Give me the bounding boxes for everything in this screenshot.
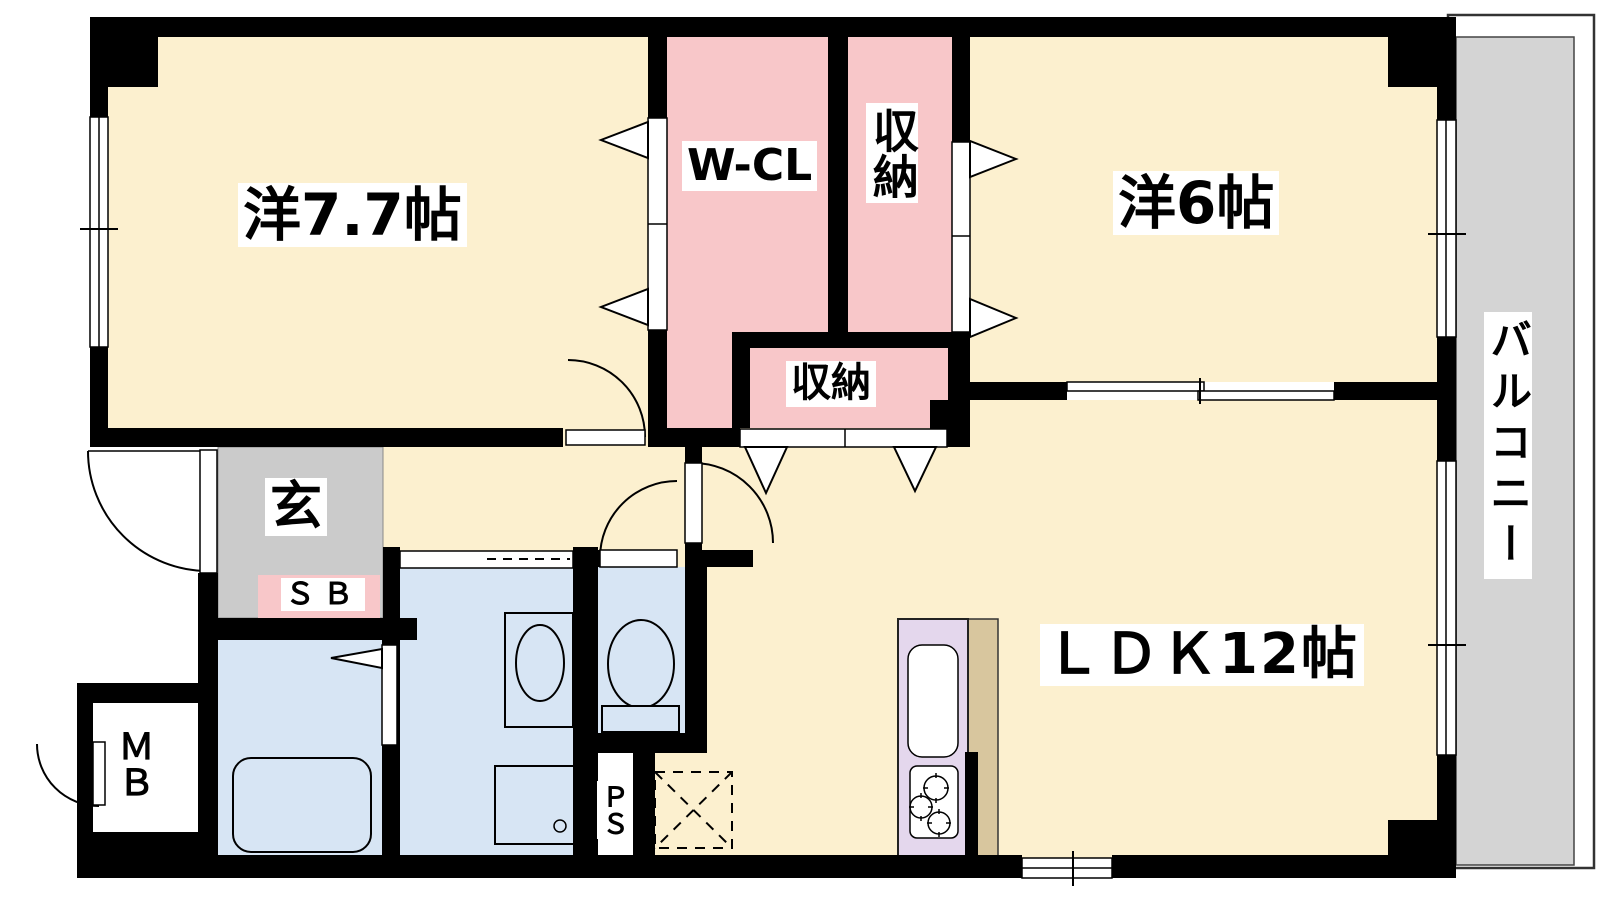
wall-mb-bottom bbox=[77, 832, 218, 855]
kitchen-sink bbox=[908, 645, 958, 757]
wall-right-c bbox=[1437, 755, 1456, 820]
wall-top bbox=[90, 17, 1456, 37]
meter-box-door bbox=[37, 742, 105, 806]
floor-plan: 洋7.7帖 W-CL 収納 洋6帖 収納 玄 ＳＢ ＭＢ ＰＳ ＬＤＫ12帖 バ… bbox=[0, 0, 1600, 900]
wcl-label: W-CL bbox=[682, 141, 817, 191]
room-77-label: 洋7.7帖 bbox=[238, 183, 467, 247]
wall-bathroom-top bbox=[218, 618, 417, 640]
storage-upper-label: 収納 bbox=[866, 103, 918, 203]
washing-machine-pan bbox=[495, 766, 574, 844]
wall-left-entry bbox=[198, 573, 218, 855]
wall-hall-stub bbox=[702, 550, 753, 567]
wall-corner-bottom-right bbox=[1388, 820, 1456, 878]
wall-corner-top-right bbox=[1388, 17, 1456, 87]
wall-hall-top bbox=[648, 428, 740, 447]
shoe-box-label: ＳＢ bbox=[281, 578, 365, 611]
wall-bottom-left bbox=[77, 855, 1022, 878]
wall-wcl-storage-divider bbox=[828, 37, 848, 332]
wall-toilet-right bbox=[685, 550, 707, 753]
wall-right-b bbox=[1437, 337, 1456, 461]
room-6-label: 洋6帖 bbox=[1113, 171, 1279, 235]
balcony-label: バルコニー bbox=[1484, 312, 1532, 579]
sliding-door-washroom bbox=[400, 551, 573, 568]
wall-storage-lower-top bbox=[732, 332, 952, 348]
pipe-space-label: ＰＳ bbox=[597, 781, 627, 839]
wall-mb-top bbox=[77, 683, 218, 703]
wall-ps-right bbox=[633, 750, 655, 858]
kitchen-stove bbox=[909, 766, 958, 838]
wall-storage-room6-upper bbox=[952, 37, 970, 142]
entrance-door bbox=[88, 450, 217, 573]
wall-hall-door-stub-top bbox=[685, 447, 702, 463]
wall-room6-bottom-right bbox=[1334, 382, 1437, 400]
storage-lower-label: 収納 bbox=[786, 361, 876, 407]
vanity-sink bbox=[505, 613, 573, 727]
floor-plan-drawing bbox=[0, 0, 1600, 900]
meter-box-label: ＭＢ bbox=[113, 726, 152, 802]
ldk-label: ＬＤＫ12帖 bbox=[1040, 624, 1364, 686]
bathtub bbox=[233, 758, 371, 852]
wall-kitchen-stub bbox=[965, 752, 978, 863]
wall-storage-lower-left bbox=[732, 348, 750, 428]
genkan-label: 玄 bbox=[265, 478, 327, 536]
wall-toilet-top-left bbox=[573, 550, 603, 567]
wall-room77-wcl-upper bbox=[648, 37, 667, 118]
wall-room77-wcl-lower bbox=[648, 330, 667, 428]
wall-washroom-right bbox=[573, 547, 598, 858]
wall-mb-left bbox=[77, 703, 93, 832]
wall-room6-bottom-left bbox=[948, 382, 1067, 400]
wall-right-a bbox=[1437, 87, 1456, 120]
wall-left-upper bbox=[90, 37, 108, 117]
wall-room77-bottom bbox=[90, 428, 563, 447]
